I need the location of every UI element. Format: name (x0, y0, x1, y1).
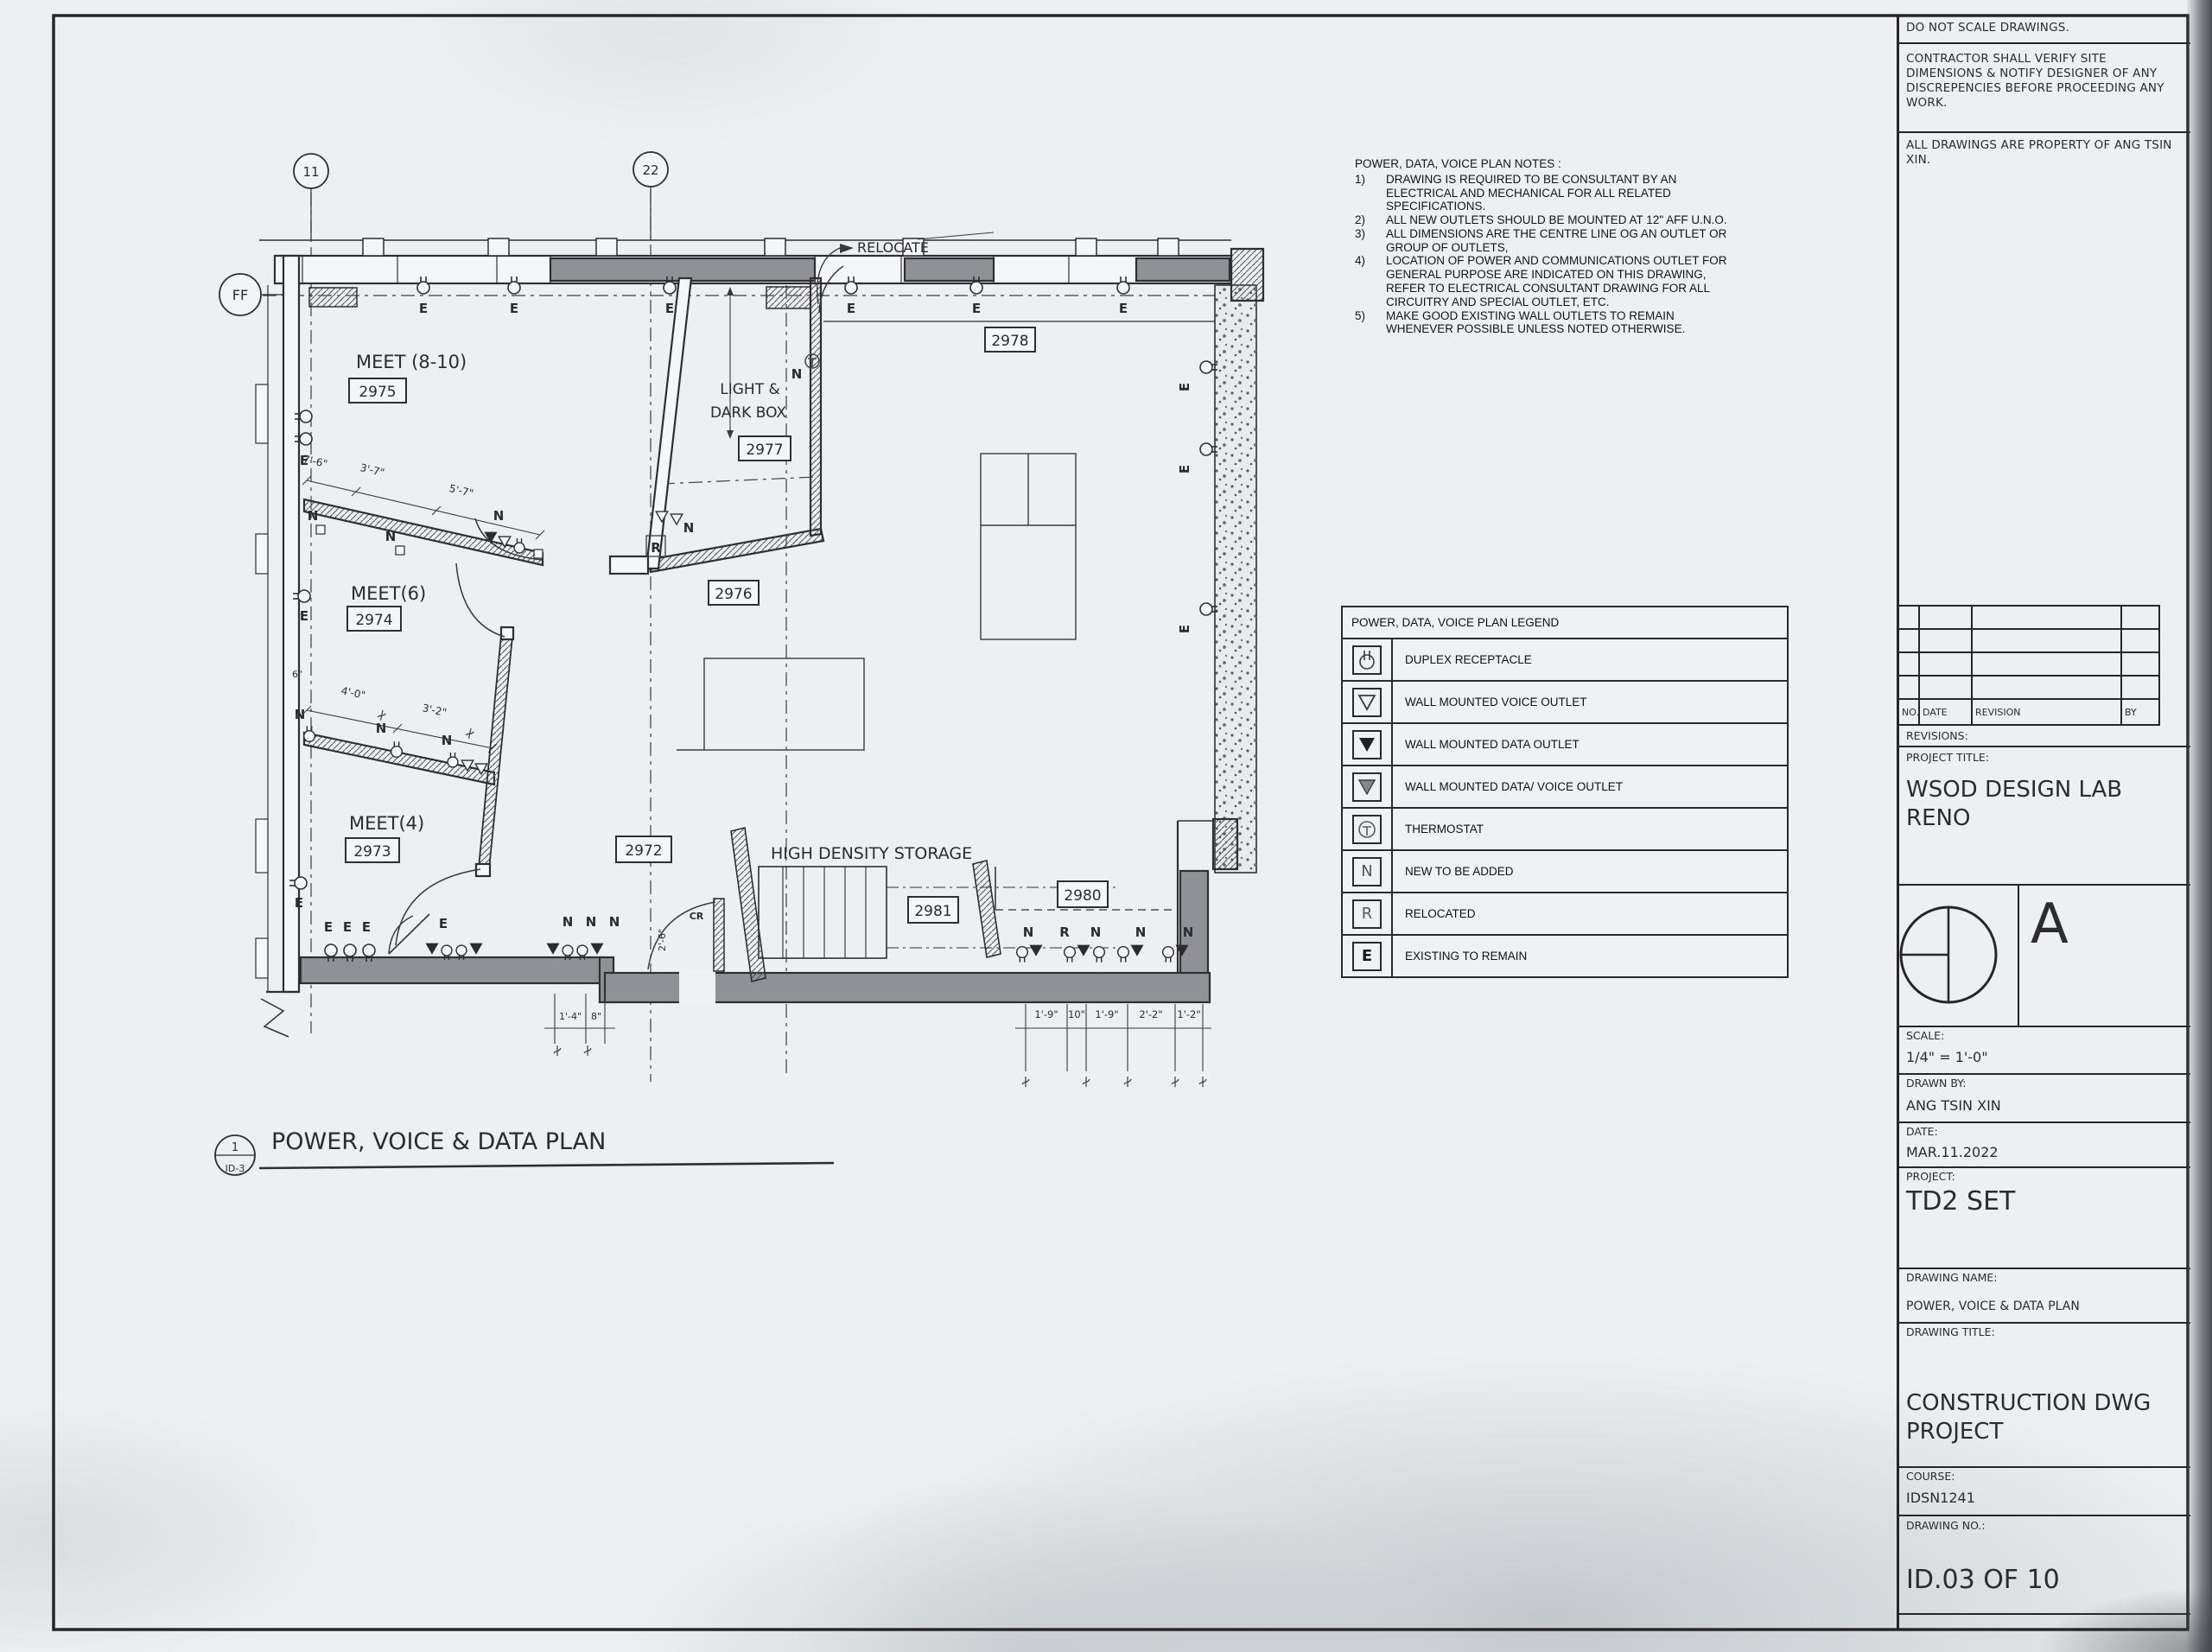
scale-value: 1/4" = 1'-0" (1906, 1049, 2185, 1065)
grid-bubble-ff: FF (232, 287, 248, 303)
drawing-title-label: DRAWING TITLE: (1906, 1325, 2185, 1338)
marker-n: N (586, 914, 597, 930)
data-outlet-icon (547, 944, 559, 954)
legend-row: DUPLEX RECEPTACLE (1343, 639, 1787, 682)
voice-outlet-icon (671, 514, 683, 524)
dim-2-2: 2'-2" (1139, 1008, 1162, 1020)
note-item: 3) ALL DIMENSIONS ARE THE CENTRE LINE OG… (1355, 227, 1813, 255)
data-outlet-icon (1131, 945, 1143, 956)
existing-symbol: E (1352, 942, 1382, 971)
revisions-table: NO. DATE REVISION BY (1899, 605, 2160, 726)
room-labels: MEET (8-10) MEET(6) MEET(4) HIGH DENSITY… (346, 239, 1108, 923)
note-item: 1) DRAWING IS REQUIRED TO BE CONSULTANT … (1355, 173, 1813, 213)
title-block: DO NOT SCALE DRAWINGS. CONTRACTOR SHALL … (1897, 16, 2190, 1630)
duplex-receptacle-icon (448, 753, 458, 767)
marker-e: E (1177, 465, 1192, 473)
note-text: LOCATION OF POWER AND COMMUNICATIONS OUT… (1386, 254, 1740, 308)
room-number-2978: 2978 (991, 333, 1028, 350)
duplex-receptacle-icon (1017, 947, 1028, 963)
duplex-receptacle-icon (1118, 947, 1129, 963)
legend-label: WALL MOUNTED VOICE OUTLET (1393, 682, 1587, 722)
north-arrow-box: A (1899, 868, 2160, 1026)
project-title-value: WSOD DESIGN LAB RENO (1906, 776, 2185, 832)
dim-1-4: 1'-4" (559, 1011, 582, 1022)
marker-n: N (308, 508, 319, 524)
legend-row: WALL MOUNTED DATA/ VOICE OUTLET (1343, 766, 1787, 809)
rev-col-by: BY (2122, 698, 2160, 724)
marker-n: N (385, 529, 397, 544)
note-item: 2) ALL NEW OUTLETS SHOULD BE MOUNTED AT … (1355, 213, 1813, 227)
dim-2-6: 2'-6" (657, 929, 668, 951)
north-arrow-icon (1899, 868, 2160, 1026)
note-text: ALL DIMENSIONS ARE THE CENTRE LINE OG AN… (1386, 227, 1740, 255)
relocate-label: RELOCATE (857, 239, 929, 256)
marker-r: R (1059, 924, 1070, 940)
marker-n: N (791, 366, 803, 382)
new-symbol: N (1352, 857, 1382, 886)
room-number-2974: 2974 (355, 612, 392, 629)
legend-label: NEW TO BE ADDED (1393, 851, 1514, 892)
dim-5-7: 5'-7" (448, 482, 474, 499)
legend-label: THERMOSTAT (1393, 809, 1484, 849)
duplex-receptacle-icon (1163, 947, 1174, 963)
legend-row: E EXISTING TO REMAIN (1343, 936, 1787, 976)
plan-legend: POWER, DATA, VOICE PLAN LEGEND DUPLEX RE… (1341, 606, 1789, 978)
plan-view-title: 1 ID-3 POWER, VOICE & DATA PLAN (215, 1128, 834, 1175)
room-number-2972: 2972 (625, 842, 662, 860)
floor-plan: 11 22 FF (0, 0, 2212, 1652)
marker-r: R (651, 540, 661, 556)
dim-6: 6" (292, 669, 302, 680)
marker-e: E (1177, 383, 1192, 391)
project-title-label: PROJECT TITLE: (1906, 751, 2185, 764)
note-number: 4) (1355, 254, 1386, 308)
marker-n: N (493, 508, 505, 524)
drawing-title-value: CONSTRUCTION DWG PROJECT (1906, 1389, 2185, 1445)
view-number: 1 (232, 1141, 238, 1154)
view-title-text: POWER, VOICE & DATA PLAN (271, 1128, 606, 1155)
marker-n: N (563, 914, 574, 930)
dim-3-7: 3'-7" (359, 461, 385, 479)
view-sheet-ref: ID-3 (226, 1163, 245, 1174)
note-contractor: CONTRACTOR SHALL VERIFY SITE DIMENSIONS … (1906, 52, 2185, 111)
legend-label: EXISTING TO REMAIN (1393, 936, 1527, 976)
notes-title: POWER, DATA, VOICE PLAN NOTES : (1355, 157, 1813, 171)
note-number: 5) (1355, 309, 1386, 337)
room-number-2976: 2976 (715, 586, 752, 603)
drawing-no-label: DRAWING NO.: (1906, 1519, 2185, 1532)
drawn-by-value: ANG TSIN XIN (1906, 1097, 2185, 1114)
room-number-2980: 2980 (1064, 887, 1101, 905)
marker-n: N (1023, 924, 1034, 940)
legend-row: WALL MOUNTED DATA OUTLET (1343, 724, 1787, 766)
marker-n: N (442, 733, 453, 748)
note-property: ALL DRAWINGS ARE PROPERTY OF ANG TSIN XI… (1906, 138, 2185, 168)
room-number-2973: 2973 (353, 843, 391, 861)
grid-bubble-11: 11 (302, 164, 319, 180)
dim-10: 10" (1068, 1008, 1085, 1020)
room-number-2981: 2981 (914, 903, 951, 920)
thermostat-icon (1352, 815, 1382, 844)
marker-e: E (1177, 625, 1192, 633)
dim-8: 8" (591, 1011, 601, 1022)
marker-e: E (847, 301, 855, 316)
legend-row: THERMOSTAT (1343, 809, 1787, 851)
duplex-receptacle-icon (1094, 947, 1105, 963)
room-name-meet-4: MEET(4) (349, 813, 424, 834)
data-outlet-icon (591, 944, 603, 954)
marker-n: N (376, 721, 387, 736)
legend-row: R RELOCATED (1343, 893, 1787, 936)
note-item: 4) LOCATION OF POWER AND COMMUNICATIONS … (1355, 254, 1813, 308)
date-value: MAR.11.2022 (1906, 1144, 2185, 1160)
outlet-symbols (289, 276, 1217, 963)
voice-outlet-icon (1352, 688, 1382, 717)
revisions-label: REVISIONS: (1906, 729, 2185, 742)
room-number-2977: 2977 (746, 442, 783, 459)
data-outlet-icon (1030, 945, 1042, 956)
legend-label: RELOCATED (1393, 893, 1476, 934)
marker-e: E (439, 916, 448, 931)
door-label-cr: CR (690, 911, 704, 922)
marker-e: E (300, 608, 308, 624)
course-value: IDSN1241 (1906, 1490, 2185, 1506)
drawn-by-label: DRAWN BY: (1906, 1077, 2185, 1090)
rev-col-no: NO. (1899, 698, 1920, 724)
plan-notes: POWER, DATA, VOICE PLAN NOTES : 1) DRAWI… (1355, 157, 1813, 336)
note-text: ALL NEW OUTLETS SHOULD BE MOUNTED AT 12"… (1386, 213, 1740, 227)
date-label: DATE: (1906, 1125, 2185, 1138)
marker-n: N (1183, 924, 1194, 940)
room-name-high-density-storage: HIGH DENSITY STORAGE (771, 844, 972, 863)
marker-e: E (419, 301, 428, 316)
note-do-not-scale: DO NOT SCALE DRAWINGS. (1906, 21, 2185, 35)
rev-col-date: DATE (1920, 698, 1973, 724)
note-number: 3) (1355, 227, 1386, 255)
relocated-symbol: R (1352, 899, 1382, 929)
legend-title: POWER, DATA, VOICE PLAN LEGEND (1343, 607, 1787, 639)
note-number: 1) (1355, 173, 1386, 213)
duplex-receptacle-icon (1065, 947, 1076, 963)
note-number: 2) (1355, 213, 1386, 227)
dim-4-0: 4'-0" (340, 684, 366, 702)
note-item: 5) MAKE GOOD EXISTING WALL OUTLETS TO RE… (1355, 309, 1813, 337)
dim-1-9: 1'-9" (1034, 1008, 1058, 1020)
data-outlet-icon (470, 944, 482, 954)
legend-label: WALL MOUNTED DATA OUTLET (1393, 724, 1580, 765)
room-name-meet-6: MEET(6) (351, 583, 426, 604)
marker-n: N (1090, 924, 1102, 940)
marker-n: N (1135, 924, 1147, 940)
marker-n: N (295, 707, 306, 722)
scan-edge-shadow (2186, 0, 2212, 1652)
duplex-receptacle-icon (514, 538, 524, 553)
data-voice-outlet-icon (1352, 772, 1382, 802)
legend-row: N NEW TO BE ADDED (1343, 851, 1787, 893)
data-outlet-icon (1077, 945, 1090, 956)
room-name-light-dark-box-2: DARK BOX (710, 404, 786, 422)
data-outlet-icon (426, 944, 438, 954)
legend-row: WALL MOUNTED VOICE OUTLET (1343, 682, 1787, 724)
drawing-name-label: DRAWING NAME: (1906, 1271, 2185, 1284)
marker-n: N (683, 520, 695, 536)
duplex-receptacle-icon (1352, 645, 1382, 675)
room-number-2975: 2975 (359, 384, 396, 401)
grid-bubble-22: 22 (642, 162, 658, 178)
drawing-name-value: POWER, VOICE & DATA PLAN (1906, 1299, 2185, 1313)
legend-label: DUPLEX RECEPTACLE (1393, 639, 1532, 680)
scan-corner-shadow (2005, 1574, 2212, 1652)
marker-e: E (324, 919, 333, 935)
project-label: PROJECT: (1906, 1170, 2185, 1183)
marker-n: N (609, 914, 620, 930)
marker-e: E (1119, 301, 1128, 316)
marker-e: E (362, 919, 371, 935)
room-name-light-dark-box-1: LIGHT & (720, 381, 780, 398)
room-name-meet-8-10: MEET (8-10) (356, 352, 467, 372)
legend-label: WALL MOUNTED DATA/ VOICE OUTLET (1393, 766, 1623, 807)
marker-e: E (343, 919, 352, 935)
duplex-receptacle-icon (304, 726, 315, 741)
note-text: DRAWING IS REQUIRED TO BE CONSULTANT BY … (1386, 173, 1740, 213)
marker-e: E (295, 895, 303, 911)
north-letter: A (2031, 893, 2069, 956)
dim-1-9b: 1'-9" (1095, 1008, 1118, 1020)
marker-e: E (510, 301, 518, 316)
drawing-sheet: 11 22 FF (0, 0, 2212, 1652)
marker-e: E (665, 301, 674, 316)
dim-1-2: 1'-2" (1177, 1008, 1200, 1020)
dim-3-2: 3'-2" (421, 702, 448, 719)
marker-e: E (972, 301, 981, 316)
data-outlet-icon (1352, 730, 1382, 759)
project-value: TD2 SET (1906, 1185, 2185, 1218)
course-label: COURSE: (1906, 1470, 2185, 1483)
note-text: MAKE GOOD EXISTING WALL OUTLETS TO REMAI… (1386, 309, 1740, 337)
scale-label: SCALE: (1906, 1029, 2185, 1042)
duplex-receptacle-icon (391, 741, 403, 757)
rev-col-revision: REVISION (1973, 698, 2122, 724)
